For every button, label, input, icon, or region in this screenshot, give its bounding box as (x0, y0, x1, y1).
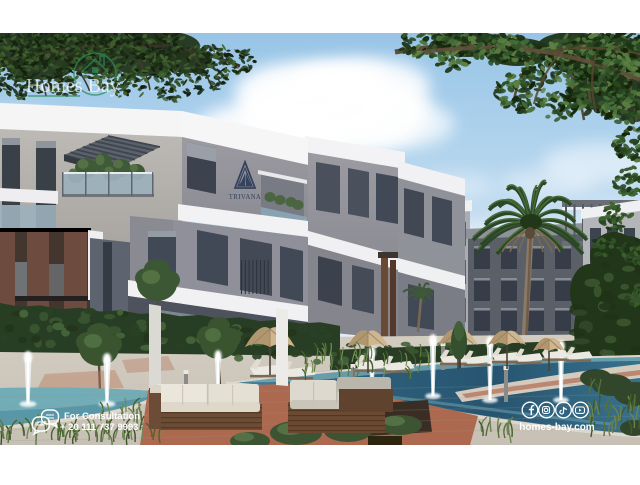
svg-text:homes-bay.com: homes-bay.com (519, 422, 594, 433)
svg-text:+ 20 111 737 9993: + 20 111 737 9993 (60, 422, 138, 433)
svg-text:Homes Bay: Homes Bay (26, 75, 120, 97)
svg-text:For Consultation: For Consultation (64, 411, 140, 422)
svg-text:TRIVANA: TRIVANA (229, 194, 262, 201)
